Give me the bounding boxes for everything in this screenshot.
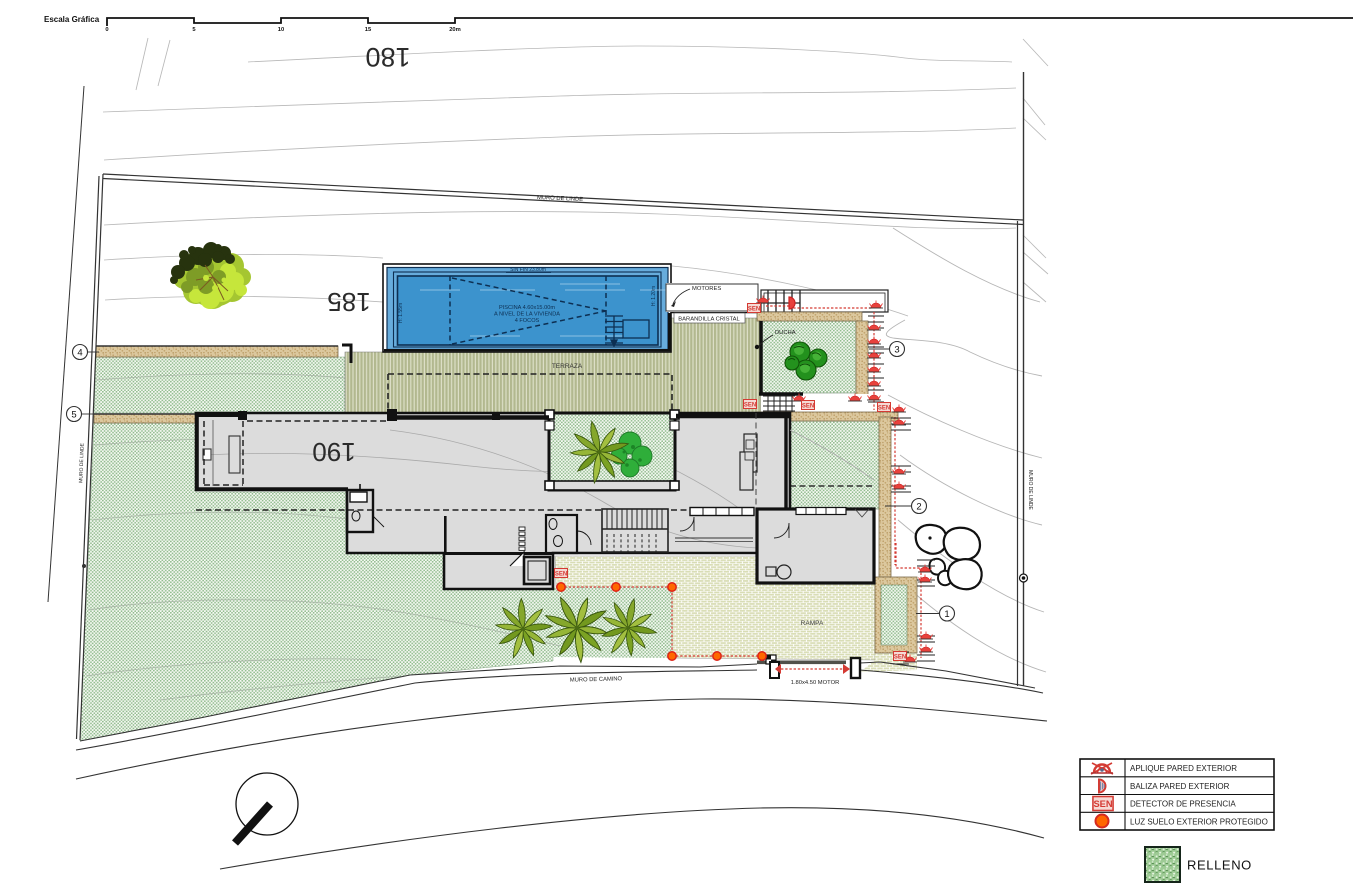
svg-text:20m: 20m (449, 27, 461, 33)
svg-text:BALIZA PARED EXTERIOR: BALIZA PARED EXTERIOR (1130, 782, 1230, 791)
svg-text:RAMPA: RAMPA (801, 620, 824, 627)
svg-text:4: 4 (77, 347, 82, 358)
svg-text:1: 1 (944, 609, 949, 620)
svg-text:10: 10 (278, 27, 284, 33)
svg-text:DETECTOR DE PRESENCIA: DETECTOR DE PRESENCIA (1130, 800, 1236, 809)
svg-text:A NIVEL DE LA VIVIENDA: A NIVEL DE LA VIVIENDA (494, 312, 560, 318)
svg-text:15: 15 (365, 27, 372, 33)
svg-text:3: 3 (894, 344, 899, 355)
svg-text:MOTORES: MOTORES (692, 286, 721, 292)
svg-text:APLIQUE PARED EXTERIOR: APLIQUE PARED EXTERIOR (1130, 764, 1237, 773)
svg-text:1.80x4.50 MOTOR: 1.80x4.50 MOTOR (791, 680, 840, 686)
svg-text:RELLENO: RELLENO (1187, 858, 1252, 873)
svg-text:185: 185 (327, 287, 370, 317)
svg-text:H: 1.55m: H: 1.55m (398, 303, 404, 323)
svg-text:0: 0 (105, 27, 108, 33)
svg-text:2: 2 (916, 501, 921, 512)
svg-text:LUZ SUELO EXTERIOR PROTEGIDO: LUZ SUELO EXTERIOR PROTEGIDO (1130, 818, 1268, 827)
svg-text:BARANDILLA CRISTAL: BARANDILLA CRISTAL (678, 317, 740, 323)
svg-text:PISCINA 4.60x15.00m: PISCINA 4.60x15.00m (499, 305, 555, 311)
svg-text:Escala Gráfica: Escala Gráfica (44, 15, 100, 24)
svg-text:TERRAZA: TERRAZA (552, 363, 583, 370)
svg-text:4 FOCOS: 4 FOCOS (515, 318, 540, 324)
svg-text:MURO DE LINDE: MURO DE LINDE (1027, 470, 1033, 510)
svg-text:H: 1.20m: H: 1.20m (651, 286, 657, 306)
svg-text:190: 190 (312, 437, 355, 467)
svg-text:5: 5 (71, 409, 76, 420)
svg-text:SIN FIN 23.80m: SIN FIN 23.80m (510, 267, 546, 273)
svg-text:DUCHA: DUCHA (775, 330, 796, 336)
svg-text:180: 180 (365, 42, 410, 72)
